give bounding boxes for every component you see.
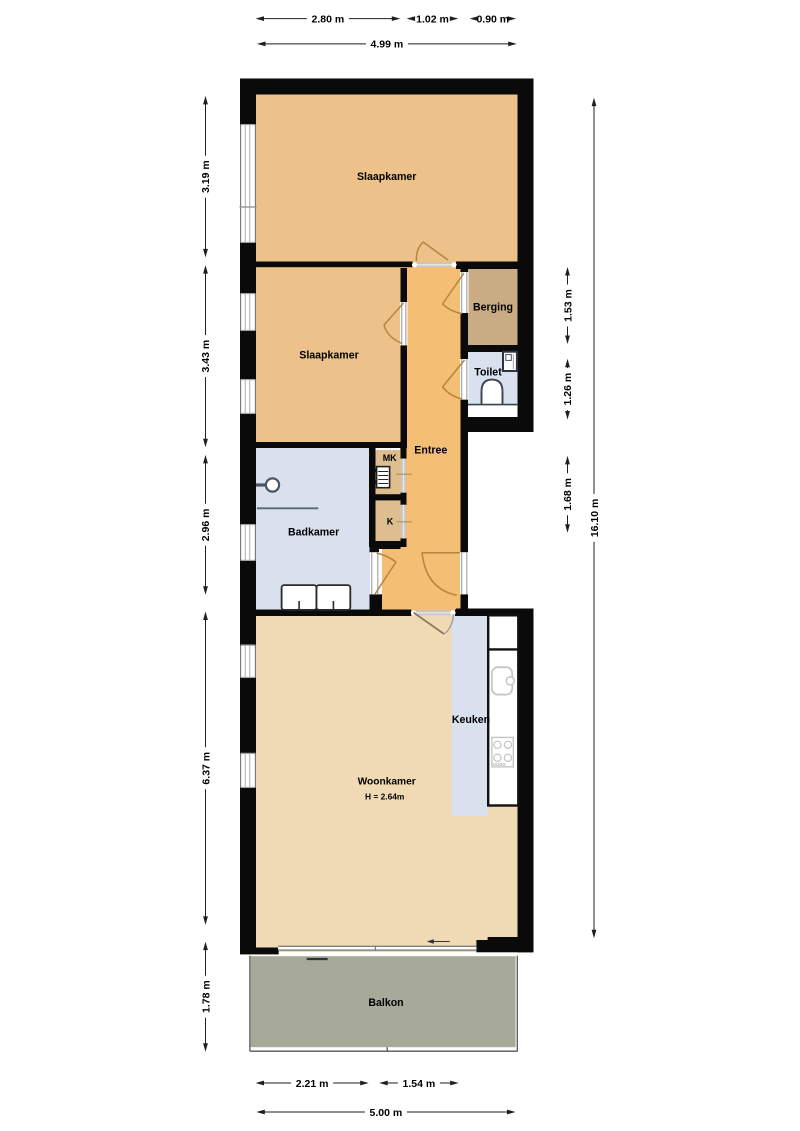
svg-text:Woonkamer: Woonkamer xyxy=(358,777,416,788)
svg-text:3.19 m: 3.19 m xyxy=(200,160,212,193)
svg-text:1.53 m: 1.53 m xyxy=(562,289,574,322)
svg-text:6.37 m: 6.37 m xyxy=(200,752,212,785)
svg-text:Entree: Entree xyxy=(414,445,447,457)
svg-text:1.26 m: 1.26 m xyxy=(562,373,574,406)
svg-text:2.21 m: 2.21 m xyxy=(296,1078,329,1090)
svg-text:3.43 m: 3.43 m xyxy=(200,340,212,373)
svg-text:Slaapkamer: Slaapkamer xyxy=(299,350,358,362)
svg-text:Slaapkamer: Slaapkamer xyxy=(357,171,416,183)
svg-text:H = 2.64m: H = 2.64m xyxy=(365,792,404,802)
svg-text:1.68 m: 1.68 m xyxy=(562,478,574,511)
svg-text:Balkon: Balkon xyxy=(368,997,403,1009)
svg-text:Toilet: Toilet xyxy=(474,367,502,379)
svg-text:Keuken: Keuken xyxy=(452,714,490,726)
svg-text:Badkamer: Badkamer xyxy=(288,526,339,538)
svg-text:1.02 m: 1.02 m xyxy=(416,13,449,25)
svg-text:5.00 m: 5.00 m xyxy=(370,1107,403,1119)
svg-text:16.10 m: 16.10 m xyxy=(589,499,601,538)
svg-text:0.90 m: 0.90 m xyxy=(476,13,509,25)
svg-text:2.80 m: 2.80 m xyxy=(312,13,345,25)
svg-text:4.99 m: 4.99 m xyxy=(371,39,404,51)
svg-text:1.78 m: 1.78 m xyxy=(200,980,212,1013)
svg-text:MK: MK xyxy=(383,453,397,463)
svg-text:Berging: Berging xyxy=(473,302,513,314)
svg-text:2.96 m: 2.96 m xyxy=(200,508,212,541)
svg-text:K: K xyxy=(387,517,394,527)
svg-text:1.54 m: 1.54 m xyxy=(403,1078,436,1090)
